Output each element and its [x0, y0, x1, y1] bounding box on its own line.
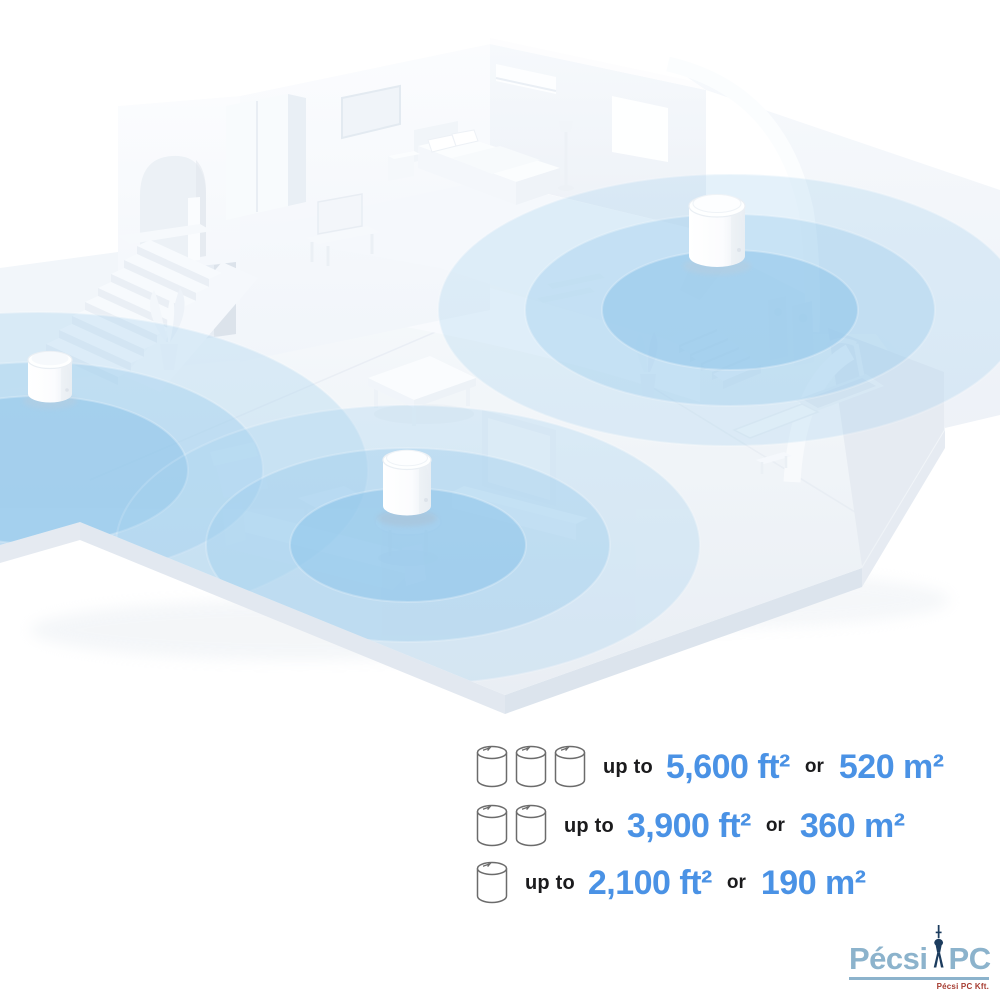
wifi-unit-icon: [514, 803, 548, 849]
unit-icons-2: [475, 803, 548, 849]
tv-tower-icon: [931, 925, 946, 974]
wifi-unit-icon: [475, 744, 509, 790]
unit-icons-3: [475, 744, 587, 790]
wifi-unit-icon: [475, 860, 509, 906]
wifi-unit-upper: [683, 195, 751, 276]
wifi-unit-icon: [475, 803, 509, 849]
coverage-prefix: up to: [525, 872, 575, 895]
wifi-unit-icon: [514, 744, 548, 790]
coverage-imperial: 5,600 ft²: [666, 748, 790, 787]
wifi-unit-icon: [553, 744, 587, 790]
coverage-prefix: up to: [564, 815, 614, 838]
watermark-logo: Pécsi PC Pécsi PC Kft.: [849, 925, 989, 991]
coverage-metric: 190 m²: [761, 864, 866, 903]
brand-text-first: Pécsi: [849, 943, 928, 974]
unit-icons-1: [475, 860, 509, 906]
coverage-conjunction: or: [805, 756, 824, 778]
coverage-imperial: 3,900 ft²: [627, 807, 751, 846]
coverage-row-3-pack: up to 5,600 ft² or 520 m²: [475, 744, 944, 790]
coverage-row-2-pack: up to 3,900 ft² or 360 m²: [475, 803, 905, 849]
coverage-prefix: up to: [603, 756, 653, 779]
coverage-row-1-pack: up to 2,100 ft² or 190 m²: [475, 860, 866, 906]
page: up to 5,600 ft² or 520 m² up to 3,900 ft…: [0, 0, 1000, 1000]
coverage-conjunction: or: [766, 815, 785, 837]
house-illustration: [0, 0, 1000, 731]
wifi-unit-living: [377, 450, 437, 526]
logo-tagline: Pécsi PC Kft.: [849, 982, 989, 991]
brand-row: Pécsi PC: [849, 925, 989, 974]
brand-text-second: PC: [949, 943, 991, 974]
wardrobe: [226, 94, 306, 220]
coverage-conjunction: or: [727, 872, 746, 894]
coverage-imperial: 2,100 ft²: [588, 864, 712, 903]
coverage-metric: 520 m²: [839, 748, 944, 787]
wifi-unit-left: [23, 352, 77, 410]
logo-underline: [849, 977, 989, 980]
coverage-metric: 360 m²: [800, 807, 905, 846]
